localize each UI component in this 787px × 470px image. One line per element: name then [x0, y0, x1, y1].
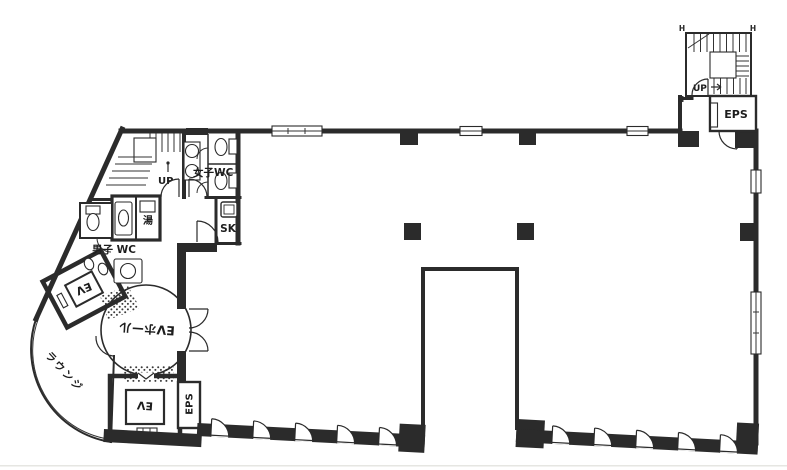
window	[751, 170, 761, 193]
column	[404, 223, 421, 240]
column	[519, 131, 536, 145]
toilet	[215, 139, 227, 156]
handrail-mark: H	[750, 24, 756, 33]
eps-room-bottom: EPS	[178, 382, 200, 428]
handrail-mark: H	[679, 24, 685, 33]
scan-artifact	[0, 465, 787, 467]
floor-plan-page: EV EV EPS	[0, 0, 787, 470]
column	[517, 223, 534, 240]
window	[460, 127, 482, 136]
label-hot-water: 湯	[143, 214, 153, 227]
label-sk: SK	[220, 223, 237, 235]
label-womens-wc: 女子WC	[193, 166, 234, 179]
column	[678, 131, 699, 147]
label-mens-wc: 男子 WC	[92, 244, 136, 256]
column	[740, 223, 757, 241]
window	[627, 127, 648, 136]
toilet	[87, 214, 99, 231]
window	[751, 292, 761, 354]
column	[398, 424, 425, 453]
toilet	[229, 139, 237, 154]
label-eps-bottom: EPS	[185, 393, 196, 414]
stair-tower: UP H H H H	[678, 24, 756, 104]
column	[400, 131, 418, 145]
sink	[121, 264, 136, 279]
toilet	[86, 206, 100, 214]
label-elevator-bottom: EV	[136, 398, 153, 412]
label-eps-top: EPS	[724, 108, 748, 121]
column	[736, 423, 760, 454]
floor-plan-drawing: EV EV EPS	[0, 0, 787, 470]
handrail-mark: H	[678, 95, 684, 104]
window	[272, 126, 322, 136]
